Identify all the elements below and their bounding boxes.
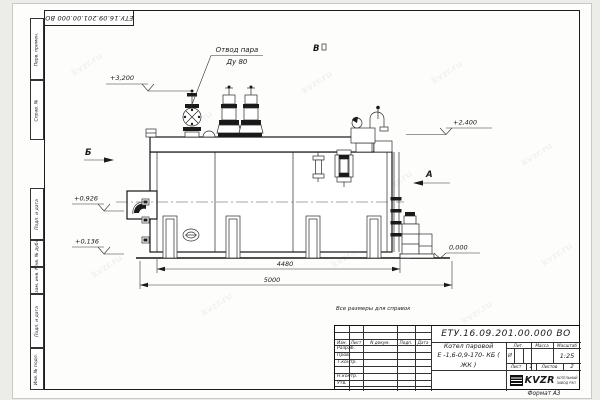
list-value: 1	[526, 363, 536, 370]
elevation-label: +0,926	[74, 195, 98, 203]
elevation-label: +3,200	[110, 74, 134, 82]
safety-valve-1	[217, 86, 241, 138]
listov-label: Листов	[536, 363, 563, 370]
scale-value: 1:25	[553, 348, 581, 363]
water-gauge-column	[335, 150, 353, 187]
row-razrab: Разраб.	[335, 345, 365, 352]
col-podp: Подп.	[397, 339, 415, 345]
product-name-line1: Котел паровой	[444, 342, 493, 351]
product-name: Котел паровой Е -1,6-0,9-170- КБ ( ЖК )	[431, 342, 506, 370]
view-arrow-a: А	[413, 170, 450, 186]
dome	[203, 131, 215, 137]
logo-sub2: ЗАВОД РЭП	[557, 381, 578, 385]
title-block: Изм. Лист N докум. Подп. Дата Разраб. Пр…	[334, 325, 580, 390]
steam-outlet-valve	[183, 90, 201, 138]
col-doc: N докум.	[363, 339, 397, 345]
listov-value: 2	[563, 363, 581, 370]
row-tkontr: Т.контр.	[335, 359, 365, 366]
view-arrow-b: Б	[84, 148, 114, 163]
elevation-0926: +0,926	[72, 195, 124, 212]
feed-unit	[400, 212, 434, 258]
elevation-2400: +2,400	[406, 119, 492, 135]
view-letter-a: А	[425, 170, 433, 180]
elevation-label: +2,400	[453, 119, 477, 127]
elevation-label: +0,136	[75, 238, 99, 246]
callout-line2: Ду 80	[226, 58, 248, 66]
format-label: Формат А3	[494, 391, 594, 397]
view-letter-v: В	[313, 44, 319, 54]
list-label: Лист	[506, 363, 526, 370]
company-logo: KVZR КОТЕЛЬНЫЙ ЗАВОД РЭП	[506, 370, 581, 391]
view-arrow-v: В	[313, 44, 326, 54]
dim-label-5000: 5000	[264, 276, 281, 284]
manhole	[183, 229, 199, 241]
product-name-line2: Е -1,6-0,9-170- КБ ( ЖК )	[431, 351, 506, 370]
safety-valve-2	[239, 86, 263, 138]
reference-note: Все размеры для справок	[336, 306, 411, 312]
dimension-5000: 5000	[140, 261, 452, 289]
col-data: Дата	[415, 339, 431, 345]
logo-name: KVZR	[525, 375, 555, 386]
massa-header: Масса	[531, 342, 553, 348]
dimension-4480: 4480	[157, 253, 400, 273]
elevation-3200: +3,200	[106, 74, 192, 91]
callout-line1: Отвод пара	[216, 46, 259, 54]
row-utv: Утв.	[335, 380, 365, 386]
kvzr-logo-icon	[510, 375, 523, 386]
dim-label-4480: 4480	[277, 260, 294, 268]
lit-value: И	[506, 348, 514, 363]
view-letter-b: Б	[85, 148, 92, 158]
doc-number: ЕТУ.16.09.201.00.000 ВО	[431, 326, 581, 342]
row-prov: Пров.	[335, 352, 365, 359]
row-nkontr: Н.контр.	[335, 373, 365, 380]
elevation-label: 0,000	[449, 244, 468, 252]
elevation-0136: +0,136	[72, 238, 124, 255]
